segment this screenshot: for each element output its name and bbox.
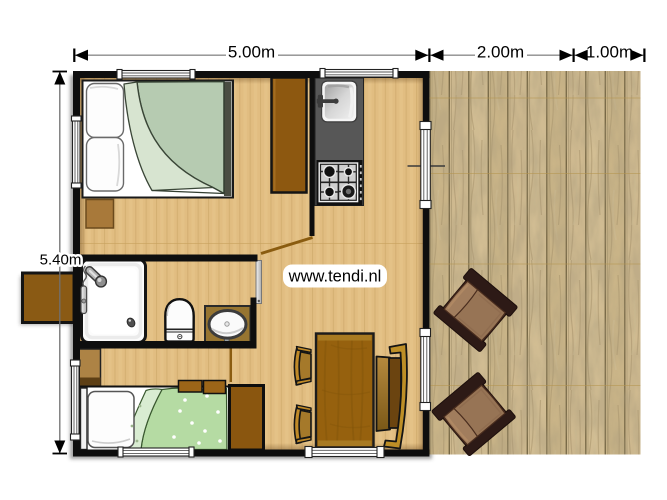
svg-text:1.00m: 1.00m [586,43,633,62]
svg-text:2.00m: 2.00m [477,43,524,62]
svg-text:5.40m: 5.40m [40,252,82,269]
svg-text:5.00m: 5.00m [228,43,275,62]
svg-text:www.tendi.nl: www.tendi.nl [288,268,382,286]
